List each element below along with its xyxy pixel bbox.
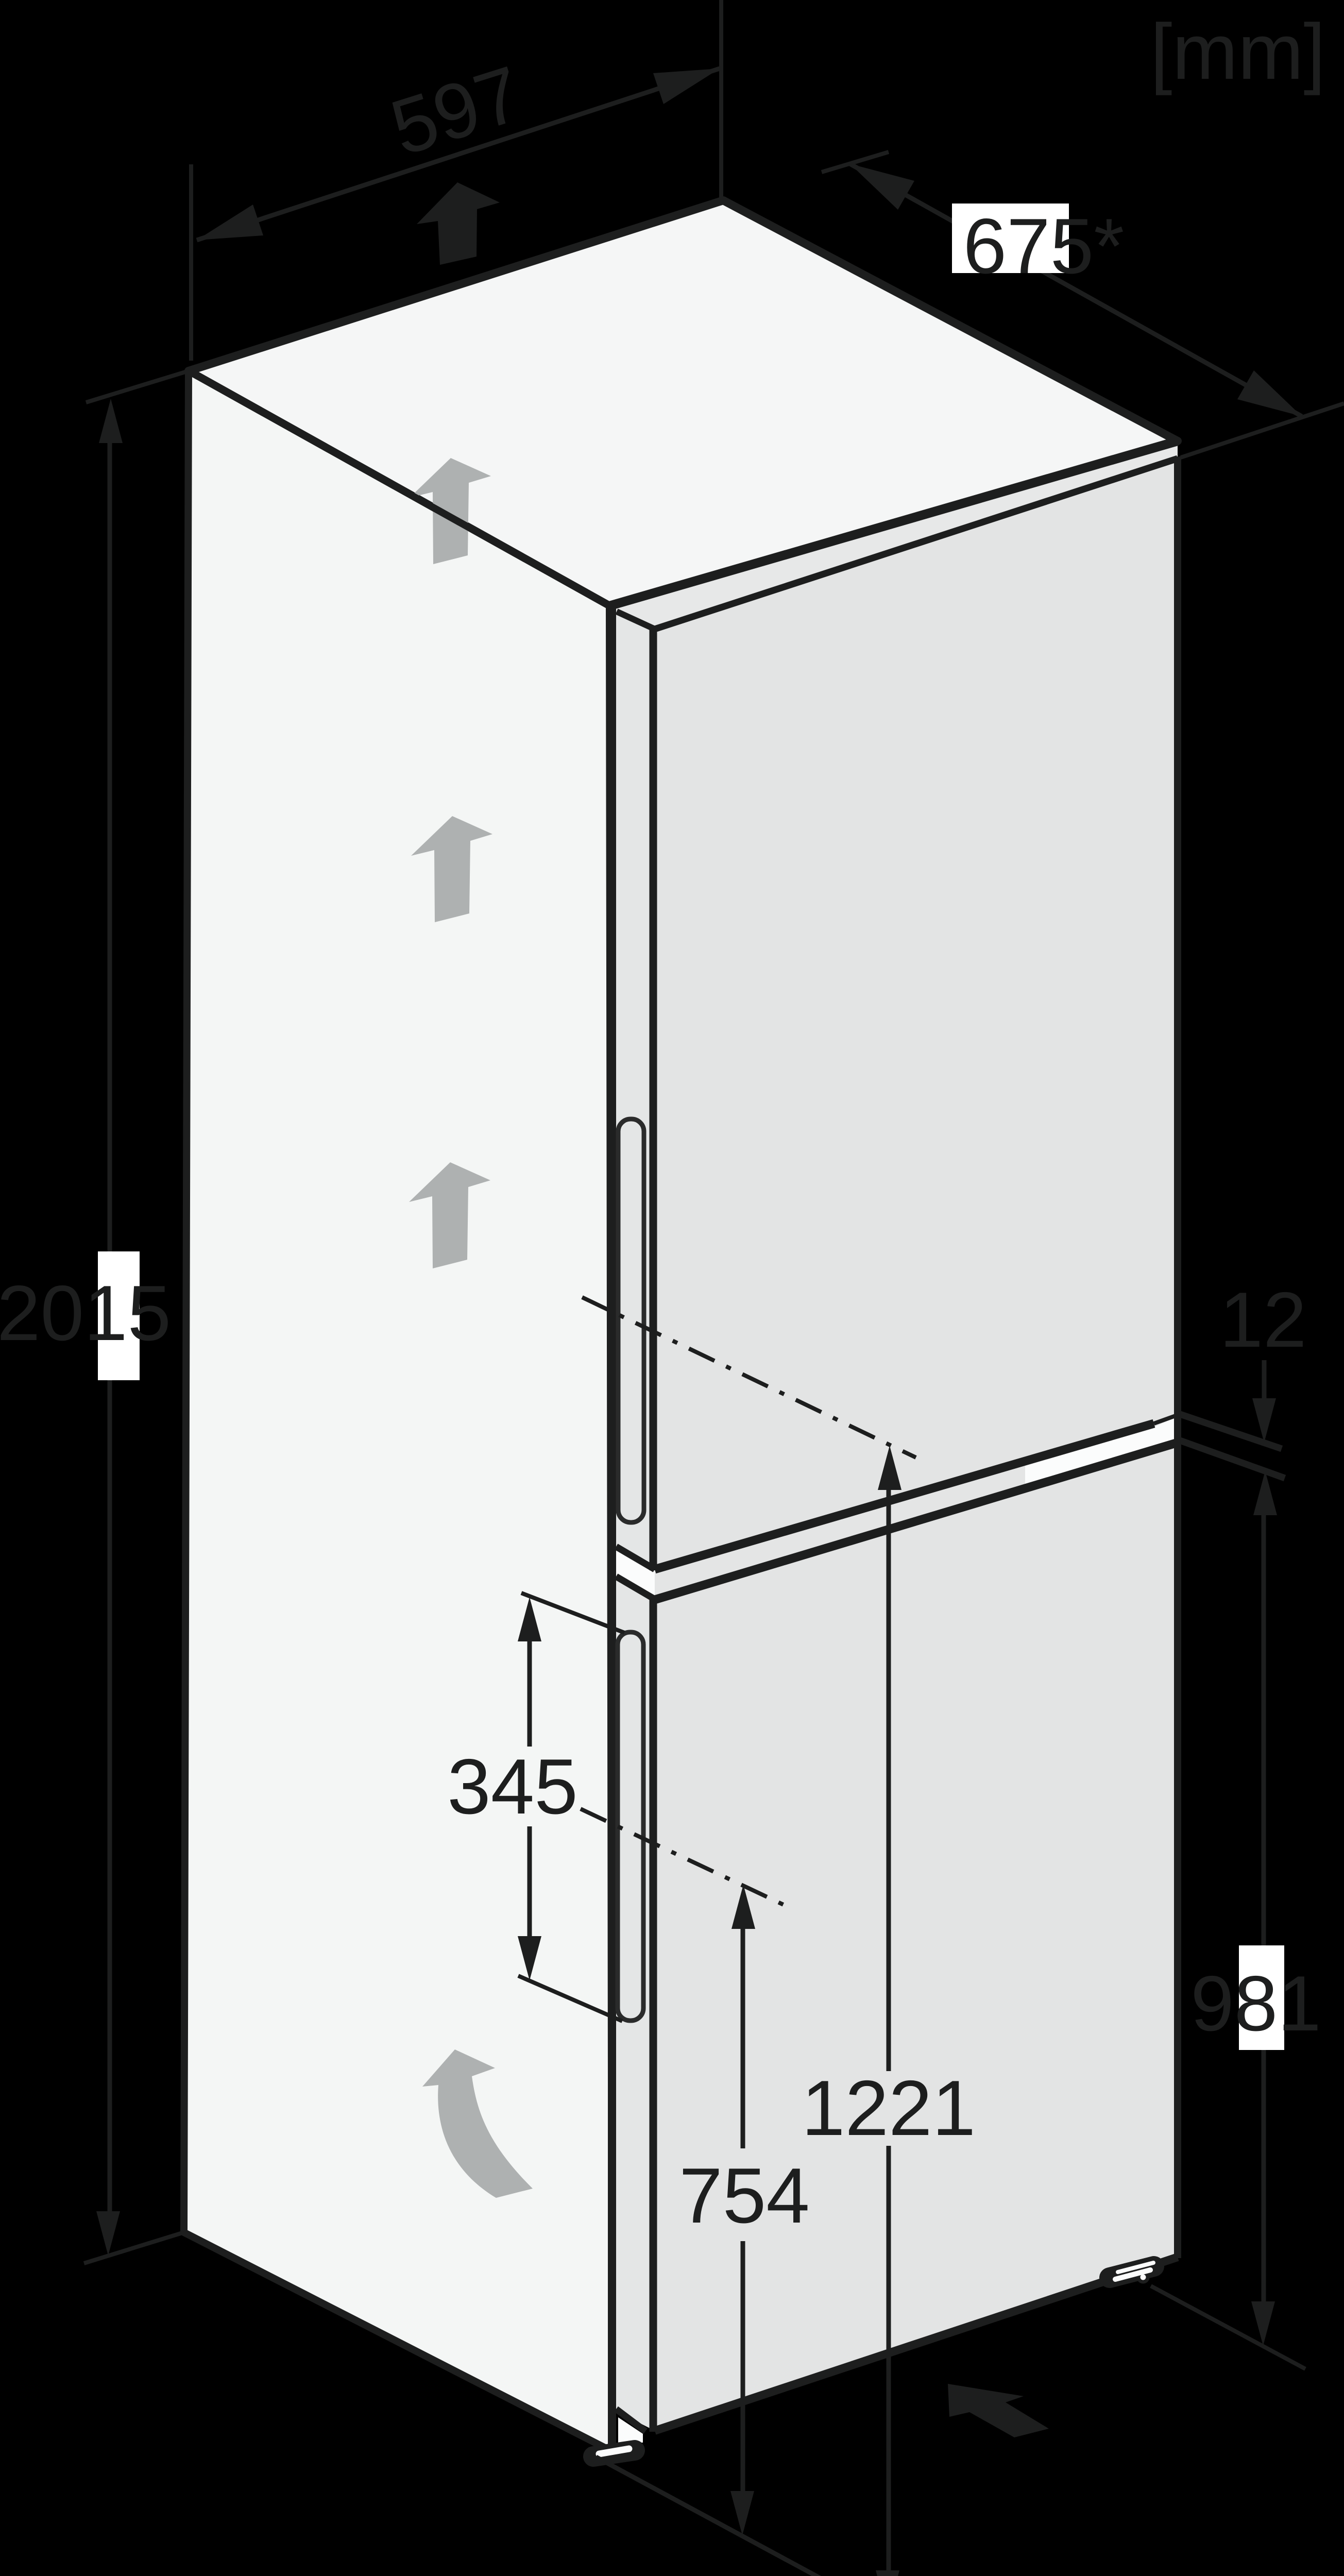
svg-text:981: 981 xyxy=(1190,1960,1321,2047)
svg-text:675*: 675* xyxy=(963,202,1125,290)
svg-text:1221: 1221 xyxy=(802,2064,976,2152)
svg-text:345: 345 xyxy=(447,1743,578,1831)
svg-text:754: 754 xyxy=(679,2152,810,2240)
svg-text:2015: 2015 xyxy=(0,1269,171,1357)
svg-text:12: 12 xyxy=(1219,1276,1306,1364)
svg-text:[mm]: [mm] xyxy=(1150,8,1325,96)
